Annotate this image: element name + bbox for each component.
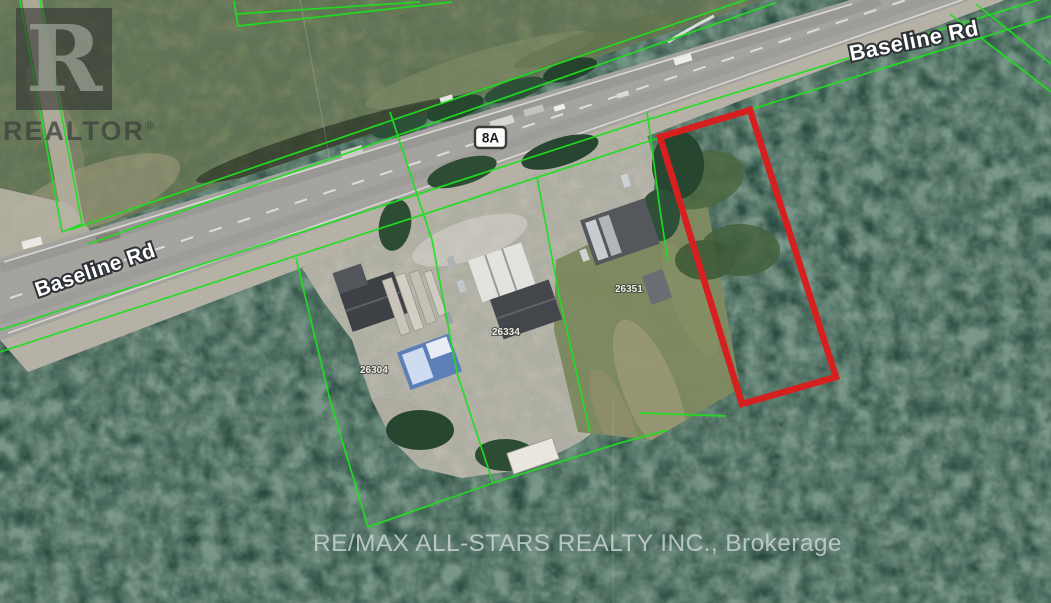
listing-map-screenshot: 8A Baseline Rd Baseline Rd 26304 26334 2…: [0, 0, 1051, 603]
realtor-wordmark: REALTOR®: [3, 116, 148, 147]
brokerage-watermark: RE/MAX ALL-STARS REALTY INC., Brokerage: [313, 530, 842, 558]
registered-trademark-symbol: ®: [145, 119, 156, 133]
realtor-logo-letter: R: [26, 11, 102, 107]
realtor-wordmark-text: REALTOR: [3, 116, 145, 146]
satellite-map-canvas[interactable]: 8A Baseline Rd Baseline Rd 26304 26334 2…: [0, 0, 1051, 603]
realtor-watermark: R REALTOR®: [16, 8, 148, 147]
address-label: 26304: [360, 365, 388, 376]
address-label: 26351: [615, 284, 643, 295]
realtor-logo-icon: R: [16, 8, 112, 110]
highway-shield-8a: 8A: [475, 127, 506, 148]
highway-shield-label: 8A: [482, 131, 500, 146]
address-label: 26334: [492, 327, 520, 338]
